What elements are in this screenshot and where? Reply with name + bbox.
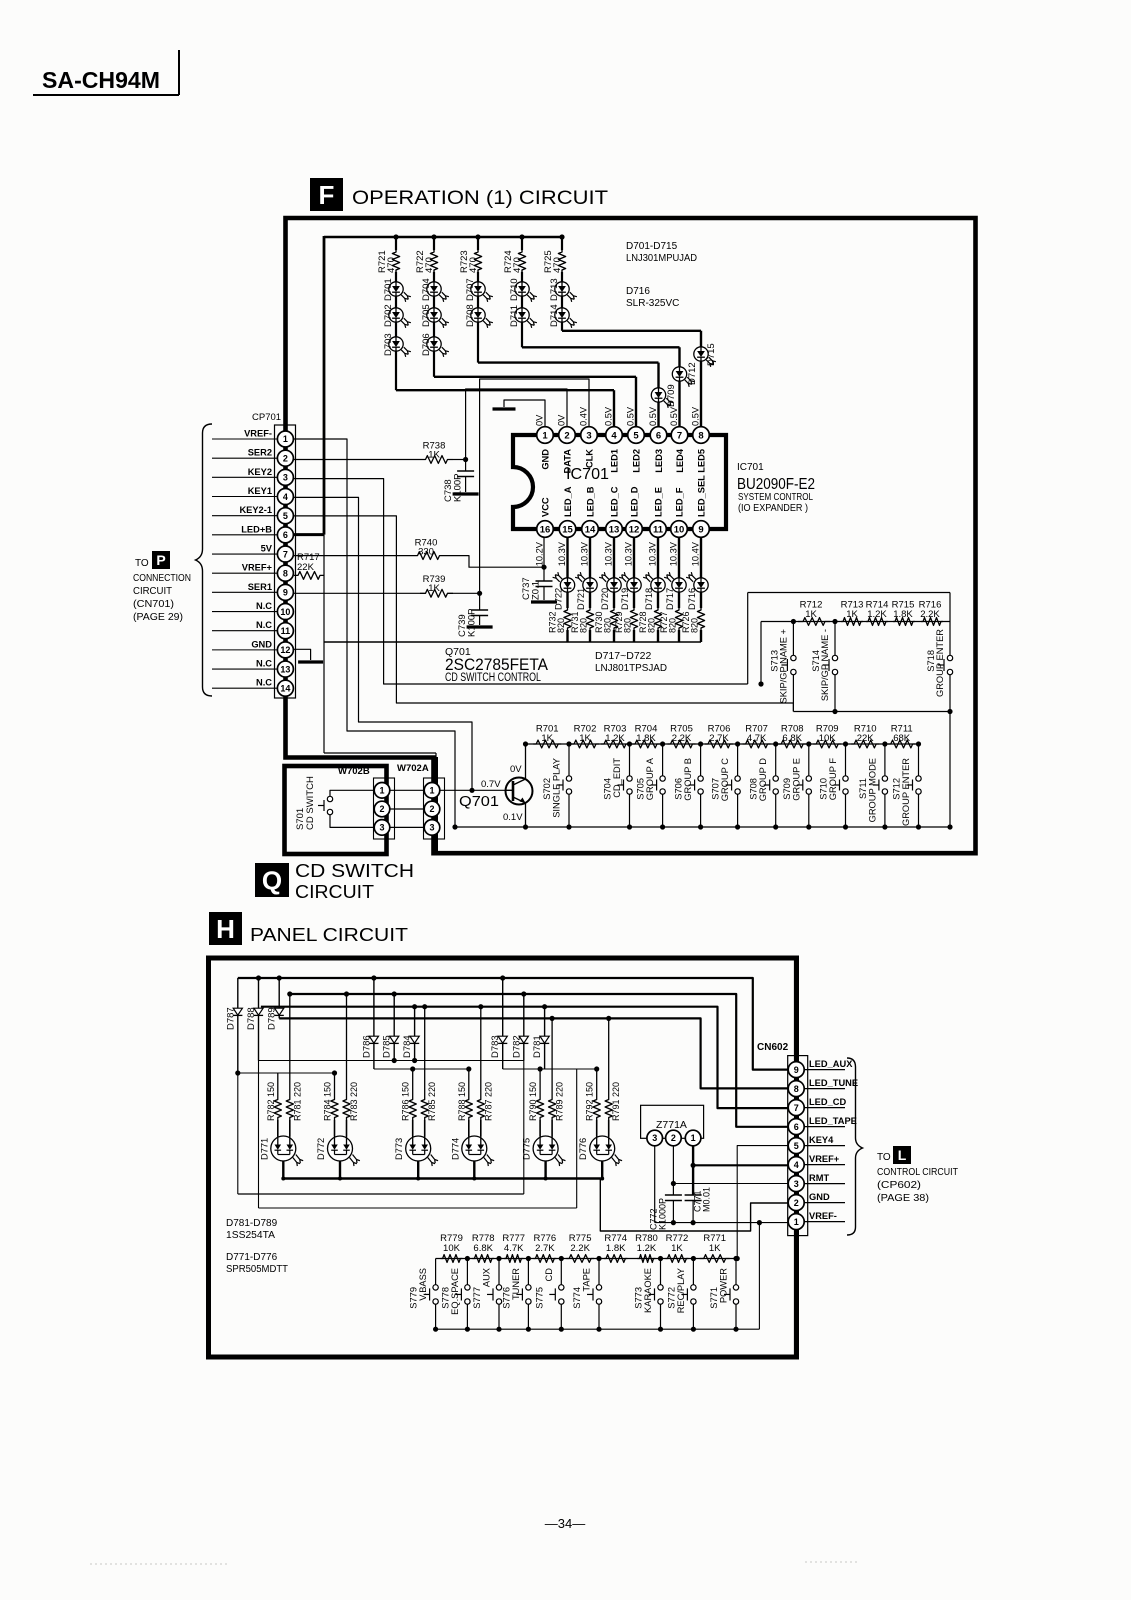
svg-text:D784: D784 — [402, 1035, 413, 1058]
svg-text:H: H — [216, 914, 235, 944]
svg-text:R786 150: R786 150 — [401, 1082, 411, 1121]
svg-text:4.7K: 4.7K — [504, 1243, 524, 1254]
svg-text:D776: D776 — [578, 1138, 588, 1160]
svg-text:R785 220: R785 220 — [427, 1082, 437, 1121]
svg-text:11: 11 — [653, 524, 664, 535]
svg-text:GROUP ENTER: GROUP ENTER — [935, 629, 945, 697]
svg-text:D716: D716 — [687, 588, 697, 610]
svg-text:K100P: K100P — [453, 473, 464, 502]
svg-text:LNJ301MPUJAD: LNJ301MPUJAD — [626, 253, 697, 264]
svg-text:OPERATION (1) CIRCUIT: OPERATION (1) CIRCUIT — [352, 187, 608, 209]
svg-text:6: 6 — [656, 430, 661, 441]
svg-text:LNJ801TPSJAD: LNJ801TPSJAD — [595, 662, 667, 674]
svg-text:K1000P: K1000P — [658, 1198, 668, 1230]
svg-text:GROUP D: GROUP D — [758, 758, 768, 802]
svg-text:S710: S710 — [819, 778, 829, 800]
svg-text:R781 220: R781 220 — [292, 1082, 302, 1121]
svg-text:6.8K: 6.8K — [473, 1243, 493, 1254]
svg-text:SA-CH94M: SA-CH94M — [42, 67, 160, 93]
svg-text:GND: GND — [251, 639, 272, 649]
svg-text:5V: 5V — [261, 544, 273, 554]
svg-text:TO: TO — [877, 1152, 891, 1163]
svg-text:1: 1 — [379, 786, 384, 796]
svg-text:SER1: SER1 — [248, 582, 272, 592]
svg-text:D772: D772 — [316, 1138, 326, 1160]
svg-text:0V: 0V — [557, 414, 567, 426]
svg-text:(PAGE 38): (PAGE 38) — [877, 1193, 929, 1204]
svg-text:P: P — [156, 552, 165, 568]
svg-text:7: 7 — [794, 1103, 799, 1113]
svg-text:10.3V: 10.3V — [669, 541, 679, 566]
svg-text:VREF-: VREF- — [809, 1211, 837, 1221]
svg-text:1SS254TA: 1SS254TA — [226, 1230, 275, 1241]
svg-text:VREF+: VREF+ — [242, 563, 273, 573]
svg-text:N.C: N.C — [256, 678, 272, 688]
svg-text:2.2K: 2.2K — [570, 1243, 590, 1254]
svg-text:SER2: SER2 — [248, 448, 272, 458]
svg-text:CN602: CN602 — [757, 1042, 789, 1053]
svg-text:D717: D717 — [665, 588, 675, 610]
svg-text:GROUP ENTER: GROUP ENTER — [901, 758, 911, 826]
svg-text:D705: D705 — [421, 304, 432, 327]
svg-text:D782: D782 — [511, 1035, 522, 1058]
svg-text:LED1: LED1 — [610, 449, 620, 473]
svg-text:11: 11 — [281, 626, 291, 636]
svg-text:R783 220: R783 220 — [349, 1082, 359, 1121]
svg-text:S777: S777 — [472, 1287, 482, 1309]
svg-text:1: 1 — [794, 1217, 799, 1227]
svg-text:1.2K: 1.2K — [867, 609, 887, 620]
svg-text:0V: 0V — [510, 764, 522, 775]
svg-text:470: 470 — [468, 257, 479, 273]
svg-text:8: 8 — [698, 430, 703, 441]
svg-text:12: 12 — [280, 645, 290, 655]
svg-text:(CN701): (CN701) — [133, 599, 174, 610]
svg-text:D716: D716 — [626, 286, 650, 297]
svg-text:GND: GND — [809, 1192, 830, 1202]
svg-text:W702A: W702A — [397, 763, 429, 774]
svg-text:S773: S773 — [634, 1287, 644, 1309]
svg-text:330: 330 — [418, 547, 434, 558]
svg-text:1.2K: 1.2K — [637, 1243, 657, 1254]
svg-text:0.5V: 0.5V — [626, 406, 636, 426]
svg-text:SYSTEM CONTROL: SYSTEM CONTROL — [738, 492, 813, 503]
svg-text:SINGLE PLAY: SINGLE PLAY — [552, 758, 562, 818]
svg-text:820: 820 — [690, 618, 700, 633]
svg-text:R792 150: R792 150 — [585, 1082, 595, 1121]
svg-text:LED2: LED2 — [632, 449, 642, 473]
svg-text:10.4V: 10.4V — [691, 541, 701, 566]
svg-text:D701-D715: D701-D715 — [626, 241, 678, 252]
svg-text:3: 3 — [379, 823, 384, 833]
svg-text:R788 150: R788 150 — [457, 1082, 467, 1121]
svg-text:10.2V: 10.2V — [535, 541, 545, 566]
svg-text:S707: S707 — [711, 778, 721, 800]
svg-text:10K: 10K — [443, 1243, 461, 1254]
svg-text:D720: D720 — [600, 588, 610, 610]
svg-text:LED_CD: LED_CD — [809, 1097, 846, 1107]
svg-text:D708: D708 — [465, 304, 476, 327]
svg-text:10K: 10K — [819, 733, 837, 744]
svg-text:13: 13 — [280, 664, 290, 674]
svg-text:(CP602): (CP602) — [877, 1180, 921, 1191]
svg-text:S711: S711 — [858, 778, 868, 799]
svg-text:0.4V: 0.4V — [579, 406, 589, 426]
svg-text:D714: D714 — [549, 304, 560, 327]
svg-text:CONNECTION: CONNECTION — [133, 573, 191, 584]
svg-text:N.C: N.C — [256, 659, 272, 669]
svg-text:0.5V: 0.5V — [604, 406, 614, 426]
svg-text:CIRCUIT: CIRCUIT — [133, 586, 172, 597]
svg-text:D712: D712 — [687, 362, 698, 385]
svg-text:0.5V: 0.5V — [648, 406, 658, 426]
svg-text:S708: S708 — [749, 778, 759, 800]
svg-text:SLR-325VC: SLR-325VC — [626, 298, 679, 309]
svg-text:S705: S705 — [636, 778, 646, 800]
svg-text:D774: D774 — [450, 1138, 460, 1160]
svg-text:KEY1: KEY1 — [248, 486, 272, 496]
svg-text:R789 220: R789 220 — [555, 1082, 565, 1121]
svg-text:820: 820 — [668, 618, 678, 633]
svg-text:LED_A: LED_A — [563, 486, 573, 517]
svg-text:14: 14 — [585, 524, 596, 535]
svg-text:7: 7 — [677, 430, 682, 441]
svg-text:N.C: N.C — [256, 601, 272, 611]
svg-text:D711: D711 — [509, 305, 520, 327]
svg-text:2: 2 — [564, 430, 569, 441]
svg-text:6: 6 — [283, 530, 288, 540]
svg-text:16: 16 — [540, 524, 551, 535]
svg-text:VREF+: VREF+ — [809, 1154, 840, 1164]
svg-text:L: L — [898, 1147, 907, 1163]
svg-text:M0.01: M0.01 — [702, 1187, 712, 1212]
svg-text:CP701: CP701 — [252, 412, 281, 423]
svg-text:R782 150: R782 150 — [266, 1082, 276, 1121]
svg-text:LED_TAPE: LED_TAPE — [809, 1116, 857, 1126]
svg-text:3: 3 — [794, 1179, 799, 1189]
svg-text:D781: D781 — [532, 1035, 543, 1058]
svg-text:CD SWITCH: CD SWITCH — [295, 861, 414, 881]
svg-text:SKIP/GP NAME +: SKIP/GP NAME + — [778, 629, 788, 704]
svg-text:LED_F: LED_F — [675, 487, 685, 517]
svg-text:3: 3 — [429, 823, 434, 833]
svg-text:S778: S778 — [440, 1287, 450, 1309]
svg-text:D719: D719 — [620, 588, 630, 610]
svg-text:CIRCUIT: CIRCUIT — [295, 882, 374, 902]
svg-text:10: 10 — [674, 524, 685, 535]
svg-text:10.3V: 10.3V — [648, 541, 658, 566]
svg-text:10.3V: 10.3V — [604, 541, 614, 566]
svg-text:2.7K: 2.7K — [709, 733, 729, 744]
svg-text:13: 13 — [609, 524, 620, 535]
svg-text:10.3V: 10.3V — [557, 541, 567, 566]
svg-text:S706: S706 — [674, 778, 684, 800]
svg-text:GROUP A: GROUP A — [645, 757, 655, 800]
svg-text:4.7K: 4.7K — [747, 733, 767, 744]
svg-text:1: 1 — [691, 1133, 696, 1143]
svg-text:D701: D701 — [383, 278, 394, 301]
svg-text:4: 4 — [794, 1160, 799, 1170]
svg-text:TAPE: TAPE — [582, 1268, 592, 1292]
svg-text:LED+B: LED+B — [241, 524, 272, 534]
svg-text:470: 470 — [424, 257, 435, 273]
svg-text:2: 2 — [429, 804, 434, 814]
svg-text:LED_C: LED_C — [610, 486, 620, 517]
svg-text:K100P: K100P — [467, 608, 478, 637]
svg-text:R784 150: R784 150 — [323, 1082, 333, 1121]
svg-text:22K: 22K — [857, 733, 875, 744]
svg-text:D786: D786 — [361, 1035, 372, 1058]
svg-text:9: 9 — [794, 1065, 799, 1075]
svg-text:VREF-: VREF- — [244, 429, 272, 439]
svg-text:6.8K: 6.8K — [782, 733, 802, 744]
svg-text:12: 12 — [629, 524, 640, 535]
svg-text:CLK: CLK — [585, 449, 595, 468]
svg-text:0.5V: 0.5V — [691, 406, 701, 426]
svg-text:GROUP C: GROUP C — [720, 758, 730, 802]
svg-text:IC701: IC701 — [737, 462, 764, 473]
svg-text:D704: D704 — [421, 278, 432, 301]
svg-text:CD: CD — [544, 1268, 554, 1282]
svg-text:1K: 1K — [579, 733, 591, 744]
svg-text:1: 1 — [429, 786, 434, 796]
svg-text:4: 4 — [611, 430, 617, 441]
svg-text:D715: D715 — [706, 343, 717, 366]
svg-text:D721: D721 — [576, 588, 586, 610]
svg-text:3: 3 — [586, 430, 591, 441]
svg-text:1: 1 — [542, 430, 548, 441]
svg-text:DATA: DATA — [563, 449, 573, 474]
svg-text:LED_B: LED_B — [586, 486, 596, 517]
svg-text:470: 470 — [386, 257, 397, 273]
svg-text:CONTROL CIRCUIT: CONTROL CIRCUIT — [877, 1167, 958, 1178]
svg-text:1.8K: 1.8K — [636, 733, 656, 744]
svg-text:LED3: LED3 — [654, 449, 664, 473]
svg-text:4: 4 — [283, 492, 288, 502]
svg-text:AUX: AUX — [482, 1268, 492, 1287]
svg-text:S772: S772 — [666, 1287, 676, 1309]
svg-text:R791 220: R791 220 — [611, 1082, 621, 1121]
svg-text:820: 820 — [579, 618, 589, 633]
svg-text:D775: D775 — [522, 1138, 532, 1160]
svg-text:CD SWITCH CONTROL: CD SWITCH CONTROL — [445, 672, 541, 684]
svg-text:Q701: Q701 — [459, 794, 499, 810]
svg-text:D702: D702 — [383, 304, 394, 327]
svg-text:S709: S709 — [782, 778, 792, 800]
svg-text:10.3V: 10.3V — [624, 541, 634, 566]
svg-text:—34—: —34— — [545, 1516, 585, 1531]
svg-text:LED_AUX: LED_AUX — [809, 1059, 853, 1069]
svg-text:8: 8 — [283, 568, 288, 578]
svg-text:Z0.1: Z0.1 — [531, 581, 542, 600]
svg-text:14: 14 — [280, 683, 290, 693]
svg-text:D771: D771 — [259, 1138, 269, 1160]
svg-text:D785: D785 — [382, 1035, 393, 1058]
svg-text:REC/PLAY: REC/PLAY — [676, 1268, 686, 1313]
svg-text:D703: D703 — [383, 333, 394, 356]
svg-text:SKIP/GP NAME -: SKIP/GP NAME - — [820, 629, 830, 701]
svg-text:V.BASS: V.BASS — [418, 1268, 428, 1301]
svg-text:POWER: POWER — [719, 1268, 729, 1303]
svg-text:3: 3 — [652, 1133, 657, 1143]
svg-text:SPR505MDTT: SPR505MDTT — [226, 1264, 288, 1275]
svg-text:CD_EDIT: CD_EDIT — [612, 758, 622, 798]
svg-text:0.7V: 0.7V — [481, 779, 501, 790]
svg-text:KEY2: KEY2 — [248, 467, 272, 477]
svg-text:470: 470 — [552, 257, 563, 273]
svg-text:LED_D: LED_D — [630, 486, 640, 517]
svg-text:S704: S704 — [603, 778, 613, 800]
svg-text:R790 150: R790 150 — [528, 1082, 538, 1121]
svg-text:D706: D706 — [421, 333, 432, 356]
svg-text:KARAOKE: KARAOKE — [643, 1268, 653, 1313]
svg-text:N.C: N.C — [256, 620, 272, 630]
svg-text:GROUP F: GROUP F — [828, 758, 838, 801]
svg-text:1: 1 — [283, 434, 288, 444]
svg-text:2.7K: 2.7K — [535, 1243, 555, 1254]
svg-text:8: 8 — [794, 1084, 799, 1094]
svg-text:820: 820 — [647, 618, 657, 633]
svg-text:1K: 1K — [671, 1243, 683, 1254]
svg-text:S771: S771 — [709, 1287, 719, 1309]
svg-text:D710: D710 — [509, 278, 520, 301]
svg-text:GND: GND — [541, 449, 551, 470]
svg-text:0.1V: 0.1V — [503, 812, 523, 823]
svg-text:(PAGE 29): (PAGE 29) — [133, 612, 183, 623]
svg-text:5: 5 — [794, 1141, 799, 1151]
svg-text:TO: TO — [135, 558, 149, 569]
svg-text:CD SWITCH: CD SWITCH — [305, 776, 316, 830]
svg-text:1.8K: 1.8K — [893, 609, 913, 620]
svg-text:5: 5 — [633, 430, 639, 441]
svg-text:VCC: VCC — [541, 497, 551, 517]
svg-text:S702: S702 — [542, 778, 552, 800]
svg-text:2: 2 — [794, 1198, 799, 1208]
svg-text:1K: 1K — [846, 609, 858, 620]
svg-text:D788: D788 — [246, 1007, 257, 1030]
svg-text:2: 2 — [379, 804, 384, 814]
svg-text:GROUP B: GROUP B — [683, 758, 693, 801]
svg-text:KEY2-1: KEY2-1 — [239, 505, 272, 515]
svg-text:9: 9 — [698, 524, 703, 535]
svg-text:1K: 1K — [428, 450, 440, 461]
svg-text:6: 6 — [794, 1122, 799, 1132]
svg-text:D713: D713 — [549, 278, 560, 301]
svg-text:470: 470 — [512, 257, 523, 273]
svg-text:2.2K: 2.2K — [672, 733, 692, 744]
svg-text:D707: D707 — [465, 278, 476, 301]
svg-text:0V: 0V — [535, 414, 545, 426]
svg-text:D783: D783 — [490, 1035, 501, 1058]
svg-text:W702B: W702B — [338, 766, 370, 777]
svg-text:820: 820 — [556, 618, 566, 633]
svg-text:1.8K: 1.8K — [606, 1243, 626, 1254]
svg-text:820: 820 — [603, 618, 613, 633]
svg-text:1.2K: 1.2K — [605, 733, 625, 744]
svg-text:GROUP MODE: GROUP MODE — [867, 758, 877, 822]
svg-text:S774: S774 — [572, 1287, 582, 1309]
svg-text:68K: 68K — [893, 733, 911, 744]
svg-text:D787: D787 — [225, 1007, 236, 1030]
svg-text:GROUP E: GROUP E — [791, 758, 801, 801]
svg-text:820: 820 — [623, 618, 633, 633]
svg-text:1K: 1K — [428, 583, 440, 594]
svg-text:S776: S776 — [501, 1287, 511, 1309]
svg-text:2: 2 — [283, 453, 288, 463]
svg-text:PANEL CIRCUIT: PANEL CIRCUIT — [250, 925, 408, 945]
svg-text:EQ.SPACE: EQ.SPACE — [450, 1268, 460, 1315]
svg-text:R787 220: R787 220 — [483, 1082, 493, 1121]
svg-text:S779: S779 — [409, 1287, 419, 1309]
svg-text:3: 3 — [283, 473, 288, 483]
svg-text:10: 10 — [280, 607, 290, 617]
svg-text:D789: D789 — [267, 1007, 278, 1030]
svg-text:D781-D789: D781-D789 — [226, 1218, 278, 1229]
svg-text:KEY4: KEY4 — [809, 1135, 834, 1145]
svg-text:2: 2 — [671, 1133, 676, 1143]
svg-text:D718: D718 — [644, 588, 654, 610]
svg-text:LED_SEL: LED_SEL — [697, 475, 707, 517]
svg-text:D717~D722: D717~D722 — [595, 650, 651, 662]
svg-text:2.2K: 2.2K — [920, 609, 940, 620]
svg-text:LED_E: LED_E — [654, 487, 664, 517]
svg-text:9: 9 — [283, 588, 288, 598]
svg-text:TUNER: TUNER — [511, 1268, 521, 1300]
svg-text:7: 7 — [283, 549, 288, 559]
svg-text:S712: S712 — [892, 778, 902, 800]
svg-text:LED5: LED5 — [697, 449, 707, 473]
svg-text:15: 15 — [562, 524, 573, 535]
svg-text:RMT: RMT — [809, 1173, 829, 1183]
svg-text:1K: 1K — [805, 609, 817, 620]
svg-text:LED4: LED4 — [675, 448, 685, 473]
svg-text:1K: 1K — [709, 1243, 721, 1254]
svg-text:BU2090F-E2: BU2090F-E2 — [737, 476, 815, 493]
svg-text:S775: S775 — [534, 1287, 544, 1309]
svg-text:1K: 1K — [541, 733, 553, 744]
svg-text:(IO EXPANDER ): (IO EXPANDER ) — [738, 503, 808, 514]
svg-text:F: F — [319, 180, 335, 210]
svg-text:10.3V: 10.3V — [580, 541, 590, 566]
svg-text:Q: Q — [262, 865, 282, 895]
svg-text:D773: D773 — [394, 1138, 404, 1160]
svg-text:D722: D722 — [554, 588, 564, 610]
svg-text:0.5V: 0.5V — [669, 406, 679, 426]
svg-text:Z771A: Z771A — [656, 1119, 687, 1131]
svg-text:5: 5 — [283, 511, 288, 521]
svg-text:D709: D709 — [666, 384, 677, 407]
svg-text:D771-D776: D771-D776 — [226, 1252, 278, 1263]
svg-text:LED_TUNE: LED_TUNE — [809, 1078, 858, 1088]
